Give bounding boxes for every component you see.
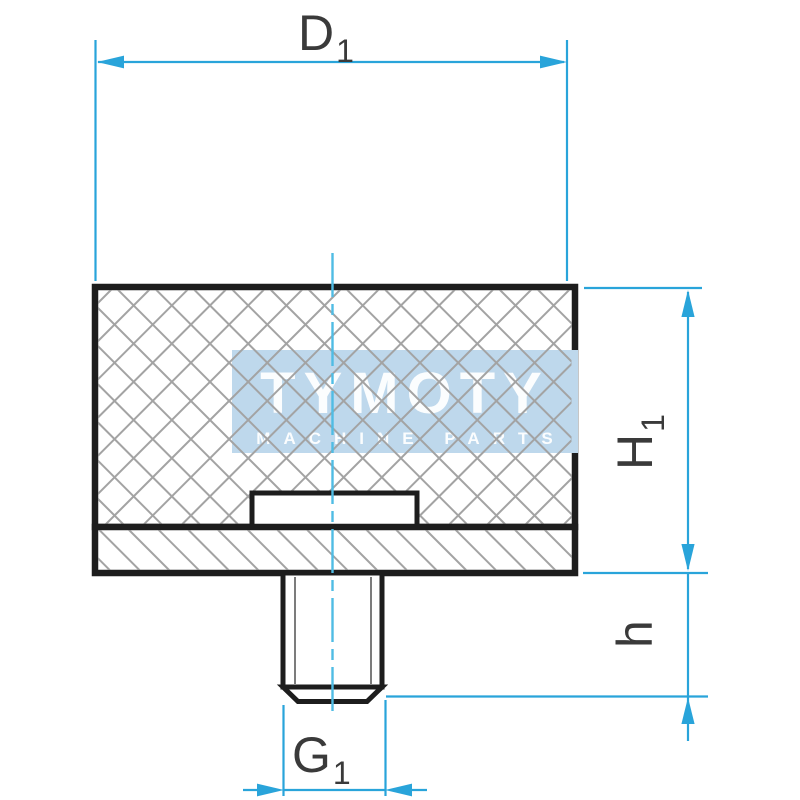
vibration-mount-drawing: TYMOTY MACHINE PARTS D1 — [0, 0, 800, 800]
arrow-down-icon — [681, 544, 694, 571]
technical-drawing-page: TYMOTY MACHINE PARTS D1 — [0, 0, 800, 800]
dimension-h1: H1 — [583, 288, 708, 573]
arrow-left-icon — [97, 56, 124, 69]
arrow-up-icon — [681, 290, 694, 317]
arrow-right-icon — [257, 784, 284, 797]
rubber-body-crosshatch — [99, 291, 572, 524]
dimension-d1: D1 — [96, 5, 568, 281]
h-label: h — [607, 620, 663, 648]
arrow-left-icon — [385, 784, 412, 797]
dimension-h: h — [386, 573, 708, 741]
d1-label: D1 — [298, 5, 354, 69]
dimension-g1: G1 — [243, 700, 427, 796]
base-plate-hatch — [99, 531, 572, 570]
h1-label: H1 — [607, 414, 671, 470]
g1-label: G1 — [292, 727, 351, 791]
arrow-up-icon — [681, 698, 694, 725]
arrow-right-icon — [540, 56, 567, 69]
thread-insert-outline — [252, 493, 417, 527]
